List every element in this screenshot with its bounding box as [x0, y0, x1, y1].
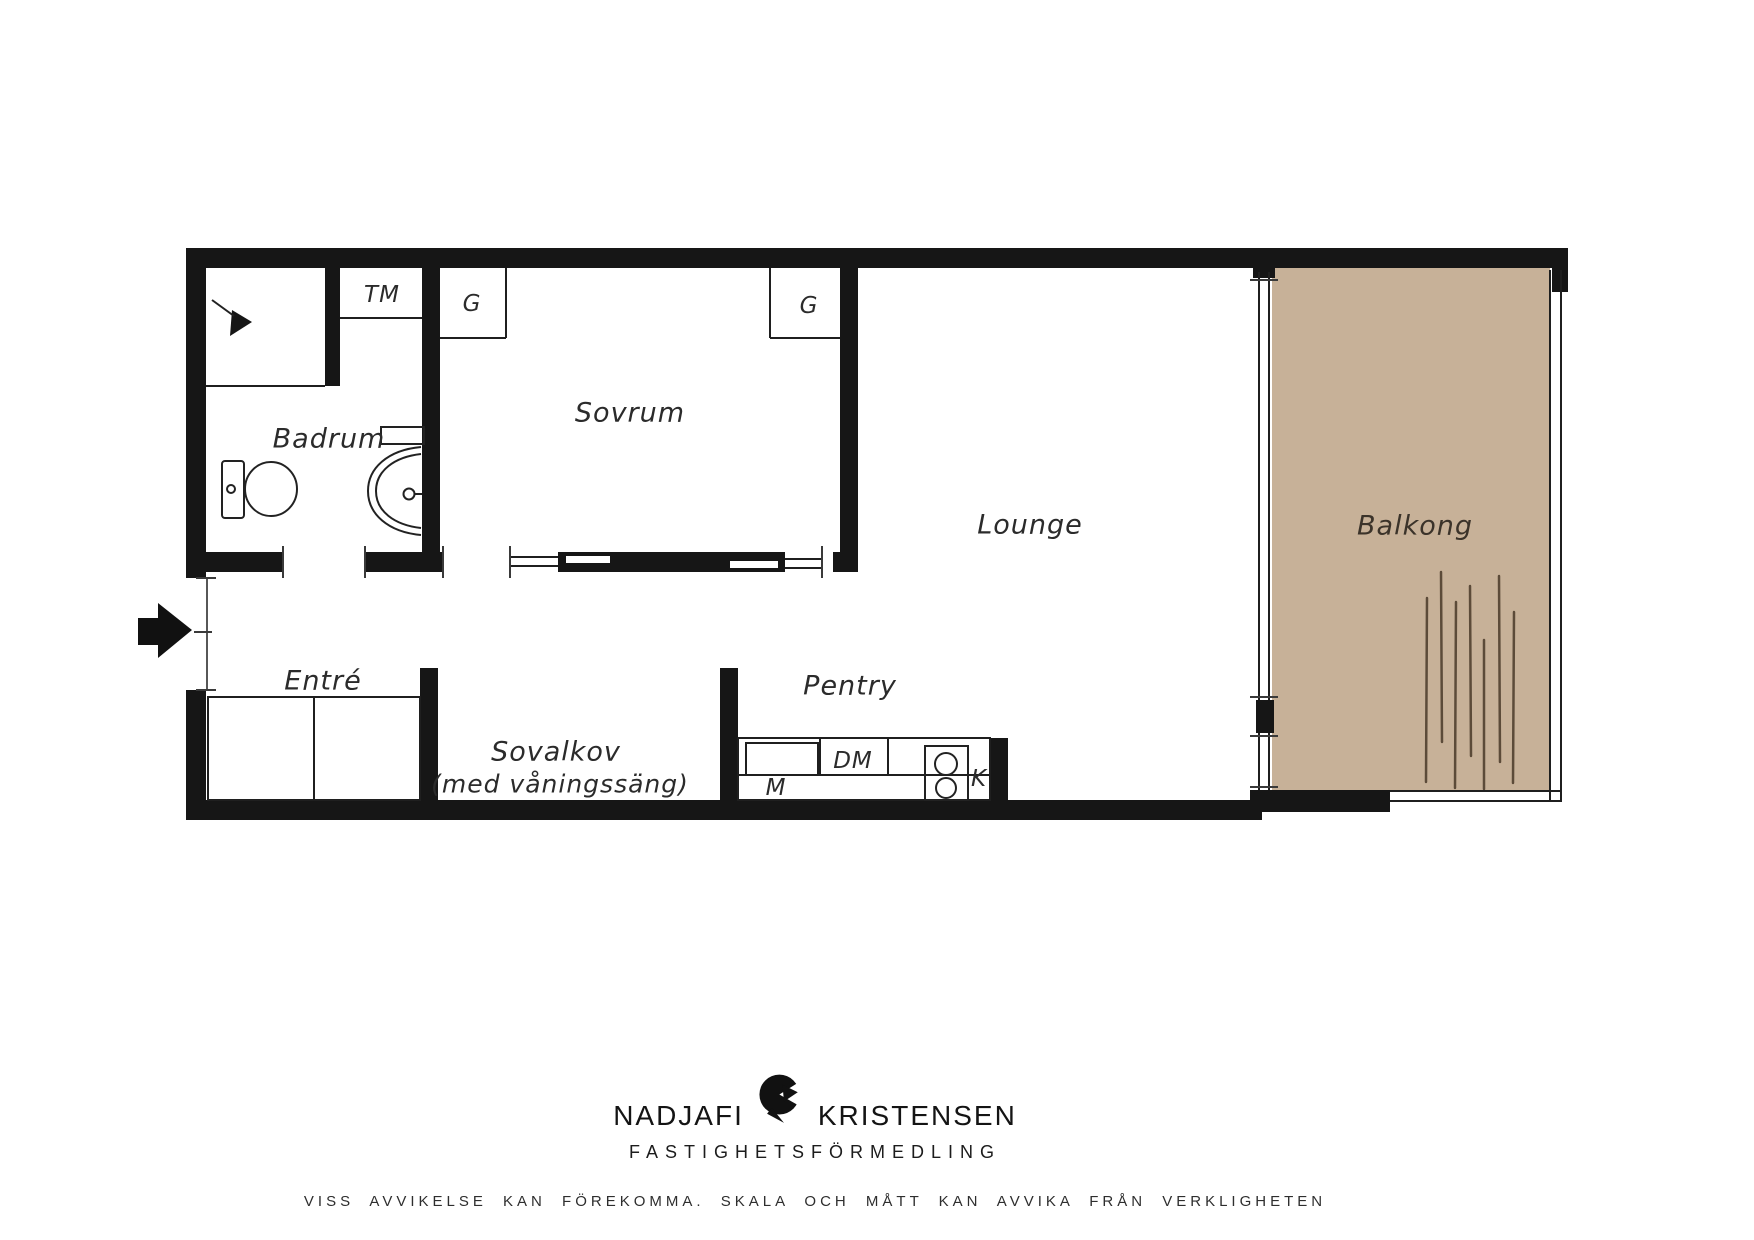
room-label-sovalkov: Sovalkov [491, 737, 621, 768]
brand-logo-icon [758, 1066, 804, 1130]
label-microwave: M [766, 775, 787, 801]
wall-segment [422, 268, 440, 552]
wall-segment [720, 668, 738, 800]
balcony-bottom-railing [1390, 791, 1561, 801]
brand-row: NADJAFI KRISTENSEN [613, 1066, 1017, 1130]
wall-segment [833, 552, 858, 572]
wall-segment [206, 552, 283, 572]
label-dishwasher: DM [833, 748, 873, 774]
footer: NADJAFI KRISTENSEN FASTIGHETSFÖRMEDLING … [304, 1066, 1326, 1210]
room-label-balkong: Balkong [1357, 511, 1473, 542]
label-washing-machine: TM [364, 282, 400, 308]
room-label-sovrum: Sovrum [575, 398, 685, 429]
label-wardrobe-1: G [463, 291, 482, 317]
room-label-sovalkov-sub: (med våningssäng) [431, 770, 689, 799]
room-label-badrum: Badrum [273, 424, 386, 455]
label-fridge: K [971, 766, 987, 792]
wall-segment [840, 268, 858, 552]
wall-segment [186, 268, 206, 578]
wall-segment [186, 248, 1568, 268]
wall-segment [186, 800, 1262, 820]
disclaimer-text: VISS AVVIKELSE KAN FÖREKOMMA. SKALA OCH … [304, 1193, 1326, 1210]
label-wardrobe-2: G [800, 293, 819, 319]
floorplan-page: TM G G Sovrum Badrum Lounge Balkong Entr… [0, 0, 1754, 1240]
balcony-right-railing [1550, 270, 1561, 802]
room-label-pentry: Pentry [803, 671, 897, 702]
wall-segment [365, 552, 443, 572]
room-label-entre: Entré [284, 666, 361, 697]
brand-subtitle: FASTIGHETSFÖRMEDLING [629, 1142, 1001, 1163]
brand-name-right: KRISTENSEN [818, 1102, 1017, 1130]
room-badrum [206, 268, 422, 552]
wall-segment [1250, 790, 1390, 812]
brand-name-left: NADJAFI [613, 1102, 744, 1130]
entrance-arrow-icon [138, 603, 192, 658]
room-label-lounge: Lounge [977, 510, 1083, 541]
